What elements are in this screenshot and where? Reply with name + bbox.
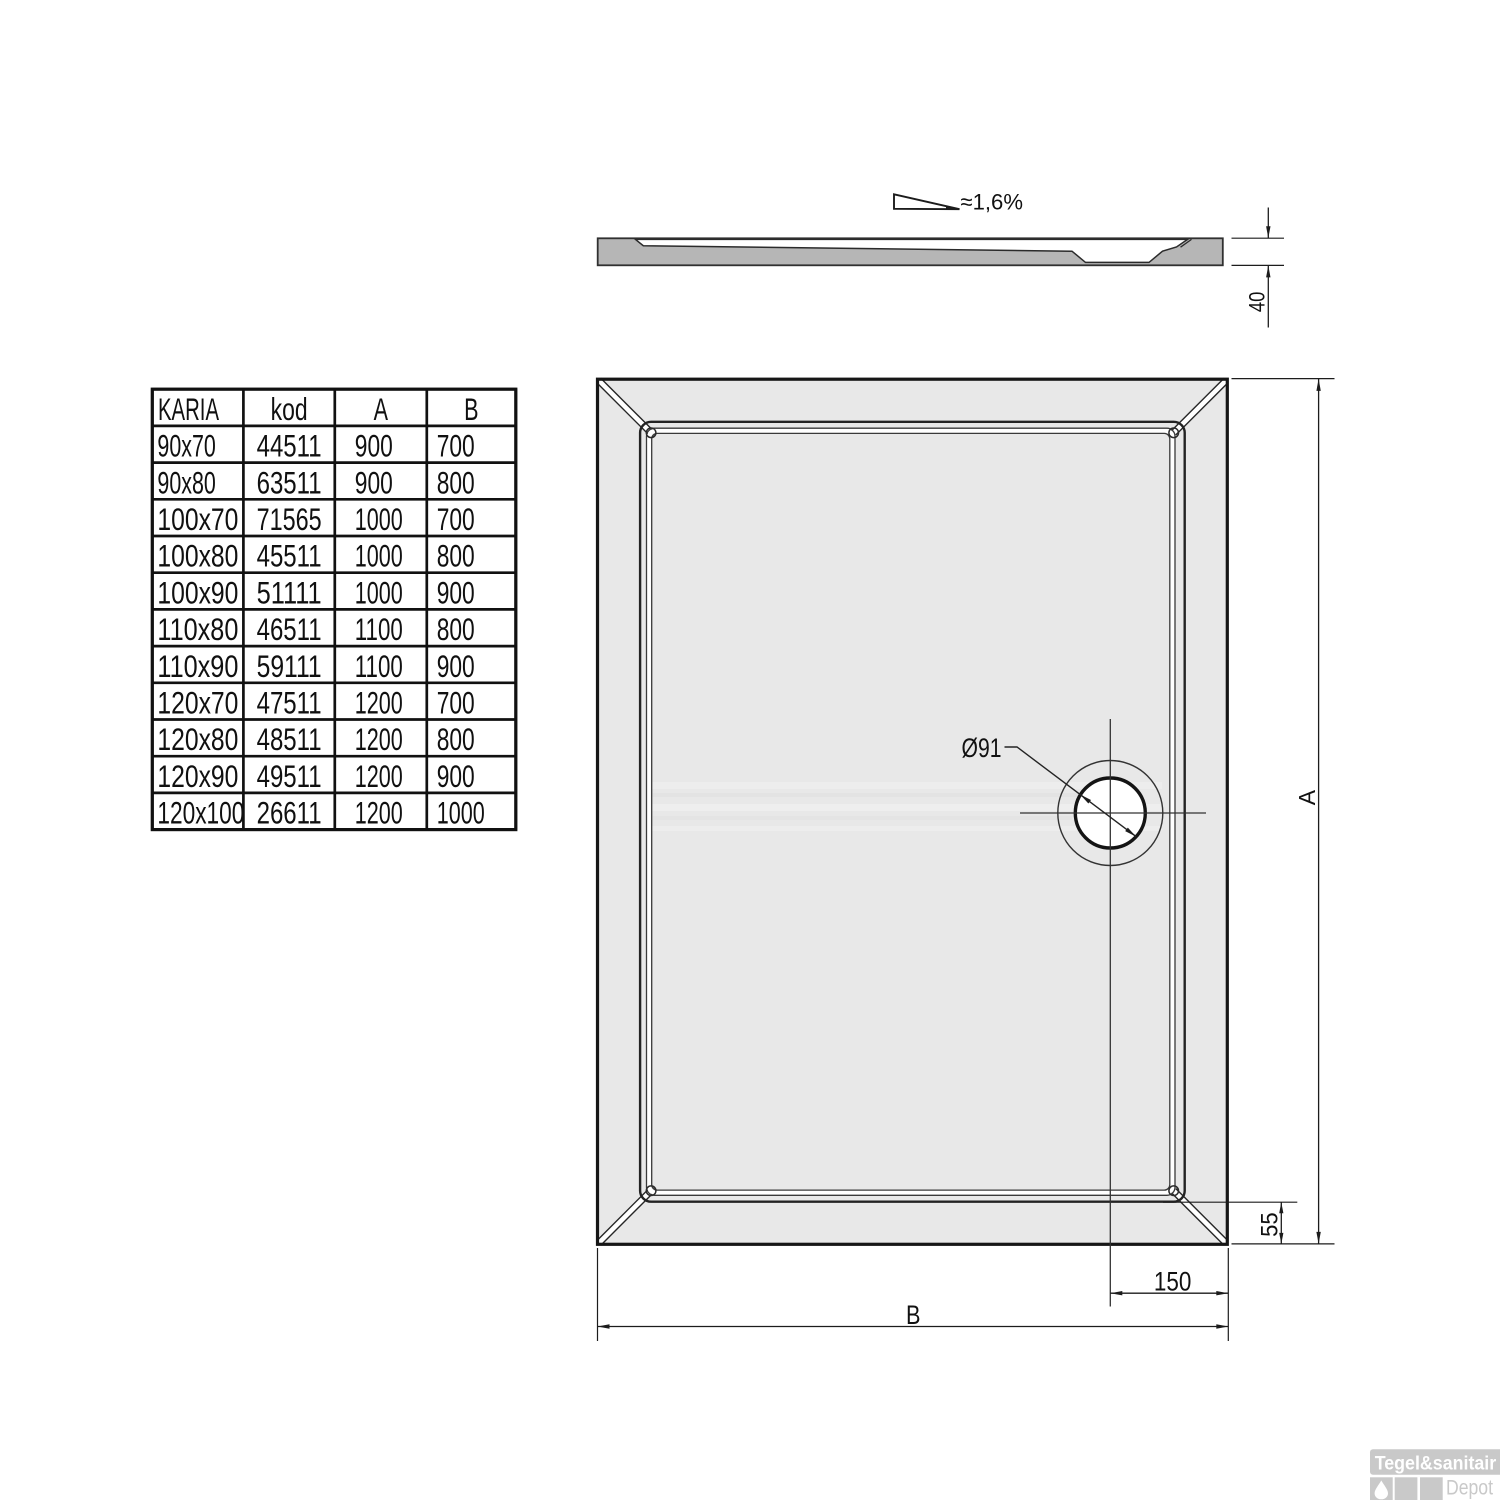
svg-text:1000: 1000 — [437, 795, 485, 831]
svg-text:Depot: Depot — [1446, 1477, 1493, 1500]
svg-text:1200: 1200 — [355, 721, 403, 757]
svg-text:1100: 1100 — [355, 611, 403, 647]
svg-text:40: 40 — [1244, 292, 1269, 313]
svg-text:A: A — [374, 391, 388, 427]
svg-text:KARIA: KARIA — [158, 391, 219, 427]
svg-text:120x80: 120x80 — [157, 721, 238, 757]
svg-text:700: 700 — [437, 428, 475, 464]
svg-text:≈1,6%: ≈1,6% — [961, 190, 1024, 215]
svg-text:120x90: 120x90 — [157, 758, 238, 794]
svg-text:1000: 1000 — [355, 538, 403, 574]
svg-text:45511: 45511 — [257, 538, 322, 574]
svg-text:55: 55 — [1256, 1212, 1283, 1237]
svg-text:1200: 1200 — [355, 685, 403, 721]
svg-text:1000: 1000 — [355, 501, 403, 537]
svg-text:1000: 1000 — [355, 574, 403, 610]
svg-text:47511: 47511 — [257, 685, 322, 721]
svg-text:Ø91: Ø91 — [962, 733, 1002, 763]
svg-text:120x70: 120x70 — [157, 685, 238, 721]
svg-text:800: 800 — [437, 464, 475, 500]
svg-text:48511: 48511 — [257, 721, 322, 757]
svg-text:900: 900 — [355, 464, 393, 500]
svg-text:1200: 1200 — [355, 795, 403, 831]
svg-text:100x80: 100x80 — [157, 538, 238, 574]
svg-text:90x70: 90x70 — [157, 428, 215, 464]
svg-text:51111: 51111 — [257, 574, 322, 610]
svg-text:700: 700 — [437, 685, 475, 721]
svg-text:900: 900 — [437, 648, 475, 684]
svg-text:900: 900 — [437, 758, 475, 794]
svg-text:1100: 1100 — [355, 648, 403, 684]
svg-text:150: 150 — [1154, 1266, 1192, 1296]
svg-text:A: A — [1294, 790, 1320, 806]
svg-text:700: 700 — [437, 501, 475, 537]
svg-text:26611: 26611 — [257, 795, 322, 831]
svg-text:44511: 44511 — [257, 428, 322, 464]
svg-text:800: 800 — [437, 721, 475, 757]
svg-text:1200: 1200 — [355, 758, 403, 794]
svg-text:kod: kod — [271, 391, 308, 427]
svg-text:110x90: 110x90 — [157, 648, 238, 684]
svg-text:900: 900 — [437, 574, 475, 610]
svg-text:B: B — [906, 1300, 921, 1330]
svg-text:800: 800 — [437, 538, 475, 574]
svg-text:900: 900 — [355, 428, 393, 464]
svg-text:46511: 46511 — [257, 611, 322, 647]
svg-text:90x80: 90x80 — [157, 464, 215, 500]
svg-text:100x70: 100x70 — [157, 501, 238, 537]
svg-text:120x100: 120x100 — [157, 795, 244, 831]
svg-text:71565: 71565 — [257, 501, 322, 537]
svg-text:110x80: 110x80 — [157, 611, 238, 647]
svg-text:63511: 63511 — [257, 464, 322, 500]
svg-text:B: B — [464, 391, 478, 427]
svg-text:800: 800 — [437, 611, 475, 647]
svg-text:49511: 49511 — [257, 758, 322, 794]
svg-text:59111: 59111 — [257, 648, 322, 684]
svg-text:100x90: 100x90 — [157, 574, 238, 610]
svg-text:Tegel&sanitair: Tegel&sanitair — [1375, 1453, 1497, 1475]
